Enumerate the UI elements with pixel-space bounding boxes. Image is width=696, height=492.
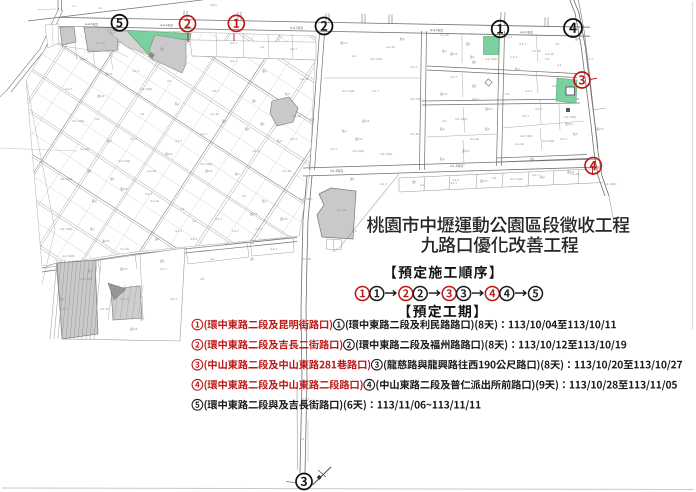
- svg-text:4-4-74(2): 4-4-74(2): [60, 177, 72, 181]
- svg-text:運2-6: 運2-6: [205, 168, 213, 173]
- svg-text:私2: 私2: [442, 48, 447, 53]
- svg-text:4-1-7: 4-1-7: [255, 227, 262, 231]
- svg-text:4-1-19: 4-1-19: [210, 112, 219, 116]
- svg-text:4-1-7: 4-1-7: [532, 173, 539, 177]
- svg-text:4-1-19: 4-1-19: [120, 297, 129, 301]
- svg-text:4-4-74(2): 4-4-74(2): [72, 119, 84, 123]
- svg-text:運1: 運1: [140, 316, 145, 321]
- svg-text:運1: 運1: [160, 258, 165, 263]
- svg-text:4-1-7: 4-1-7: [290, 47, 297, 51]
- svg-text:4-4-74(2): 4-4-74(2): [140, 87, 152, 91]
- svg-text:4-4-74(2): 4-4-74(2): [485, 57, 497, 61]
- svg-text:4-4-74(2): 4-4-74(2): [300, 197, 312, 201]
- svg-text:運2-6: 運2-6: [165, 151, 173, 156]
- svg-text:4-4: 4-4: [420, 183, 425, 187]
- svg-text:私2: 私2: [485, 126, 490, 131]
- svg-text:4-1-19: 4-1-19: [440, 33, 449, 37]
- svg-text:運2-6: 運2-6: [130, 326, 138, 331]
- svg-text:私2: 私2: [342, 128, 347, 133]
- svg-text:4-4-7: 4-4-7: [380, 182, 387, 186]
- svg-text:4-4-74(2): 4-4-74(2): [342, 89, 354, 93]
- svg-text:私2: 私2: [90, 226, 95, 231]
- svg-text:4-4-7: 4-4-7: [170, 297, 177, 301]
- svg-text:4-1-19: 4-1-19: [337, 208, 346, 212]
- svg-text:4-1-19: 4-1-19: [80, 147, 89, 151]
- svg-text:私2: 私2: [175, 101, 180, 106]
- svg-text:4-1-19: 4-1-19: [300, 77, 309, 81]
- svg-text:4-1-7: 4-1-7: [372, 89, 379, 93]
- svg-text:4-1-7: 4-1-7: [330, 147, 337, 151]
- svg-text:4-4: 4-4: [95, 117, 100, 121]
- svg-text:運2-6: 運2-6: [565, 121, 573, 126]
- svg-text:運1: 運1: [472, 83, 477, 88]
- svg-text:4-4: 4-4: [505, 92, 510, 96]
- svg-text:4-1-7: 4-1-7: [522, 114, 529, 118]
- svg-text:4-4: 4-4: [545, 57, 550, 61]
- svg-text:4-4: 4-4: [192, 219, 197, 223]
- svg-text:4-1-19: 4-1-19: [570, 172, 579, 176]
- svg-text:4-1-19: 4-1-19: [470, 137, 479, 141]
- svg-text:4-4-74(2): 4-4-74(2): [62, 254, 74, 258]
- svg-text:4-4-74(2): 4-4-74(2): [85, 22, 98, 26]
- svg-text:4-1-19: 4-1-19: [515, 142, 524, 146]
- svg-text:4-4-74(2): 4-4-74(2): [510, 177, 522, 181]
- svg-text:4-4-7: 4-4-7: [212, 89, 219, 93]
- svg-text:4-4-7: 4-4-7: [472, 97, 479, 101]
- svg-text:4-1-7: 4-1-7: [535, 107, 542, 111]
- svg-text:4-1-19: 4-1-19: [545, 52, 554, 56]
- svg-text:4-1-7: 4-1-7: [130, 137, 137, 141]
- svg-text:4-1-7: 4-1-7: [80, 57, 87, 61]
- svg-text:4-1-19(2): 4-1-19(2): [450, 164, 463, 168]
- svg-text:4-4: 4-4: [442, 119, 447, 123]
- svg-text:4-4: 4-4: [210, 257, 215, 261]
- svg-text:4-4-7: 4-4-7: [510, 55, 517, 59]
- svg-text:運2-6: 運2-6: [102, 238, 110, 243]
- svg-text:4-4-74(2): 4-4-74(2): [410, 97, 422, 101]
- svg-text:運1: 運1: [350, 176, 355, 181]
- svg-text:運2-6: 運2-6: [480, 178, 488, 183]
- svg-text:4-4-7: 4-4-7: [519, 42, 526, 46]
- svg-text:4-4: 4-4: [260, 45, 265, 49]
- svg-text:私2: 私2: [88, 268, 93, 273]
- svg-text:4-4: 4-4: [200, 277, 205, 281]
- svg-text:4-1-19: 4-1-19: [386, 45, 395, 49]
- svg-text:私2: 私2: [107, 138, 112, 143]
- svg-text:運1: 運1: [222, 118, 227, 123]
- svg-text:44(2): 44(2): [210, 3, 217, 7]
- svg-text:4-4-74(2): 4-4-74(2): [60, 227, 72, 231]
- svg-text:4-1-7: 4-1-7: [232, 229, 239, 233]
- svg-text:運2-6: 運2-6: [440, 91, 448, 96]
- svg-text:4-4-74(2): 4-4-74(2): [160, 24, 173, 28]
- svg-text:私2: 私2: [92, 198, 97, 203]
- svg-text:4-1-7: 4-1-7: [410, 65, 417, 69]
- svg-text:私2: 私2: [60, 296, 65, 301]
- svg-text:運2-6: 運2-6: [250, 211, 258, 216]
- svg-text:4-1-7: 4-1-7: [60, 307, 67, 311]
- svg-text:4-1-19: 4-1-19: [147, 169, 156, 173]
- svg-text:運2-6: 運2-6: [105, 71, 113, 76]
- svg-text:運1: 運1: [472, 59, 477, 64]
- svg-text:4-4: 4-4: [492, 176, 497, 180]
- svg-text:4-1-19: 4-1-19: [292, 114, 301, 118]
- svg-text:運1: 運1: [160, 46, 165, 51]
- svg-text:4-1-7: 4-1-7: [175, 229, 182, 233]
- svg-text:運1: 運1: [466, 41, 471, 46]
- svg-text:4-4-7: 4-4-7: [230, 41, 237, 45]
- svg-text:4-4-7: 4-4-7: [270, 247, 277, 251]
- svg-text:4-4-74(2): 4-4-74(2): [118, 159, 130, 163]
- svg-text:私2: 私2: [352, 228, 357, 233]
- svg-text:運2-6: 運2-6: [120, 186, 128, 191]
- svg-text:運2-6: 運2-6: [120, 266, 128, 271]
- svg-text:4-4-74(2): 4-4-74(2): [290, 26, 303, 30]
- svg-text:私2: 私2: [440, 156, 445, 161]
- svg-text:4-1-7: 4-1-7: [175, 139, 182, 143]
- svg-text:4-4-7: 4-4-7: [230, 59, 237, 63]
- svg-text:運1: 運1: [87, 168, 92, 173]
- svg-text:4-1-7: 4-1-7: [450, 181, 457, 185]
- svg-text:運1: 運1: [260, 121, 265, 126]
- svg-text:私2: 私2: [515, 66, 520, 71]
- svg-text:4-4-7: 4-4-7: [525, 89, 532, 93]
- svg-text:運1: 運1: [412, 179, 417, 184]
- svg-text:4-1-19: 4-1-19: [302, 257, 311, 261]
- svg-text:4-1-7: 4-1-7: [132, 69, 139, 73]
- svg-text:4-4-74(2): 4-4-74(2): [520, 30, 533, 34]
- svg-text:4-4-74(2): 4-4-74(2): [542, 139, 554, 143]
- svg-text:運2-6: 運2-6: [485, 106, 493, 111]
- svg-text:4-1-7: 4-1-7: [215, 217, 222, 221]
- svg-text:運1: 運1: [245, 126, 250, 131]
- svg-text:運2-6: 運2-6: [596, 126, 604, 131]
- svg-text:4-4: 4-4: [470, 32, 475, 36]
- svg-text:4-4-7: 4-4-7: [145, 192, 152, 196]
- svg-text:4-1-7: 4-1-7: [586, 57, 593, 61]
- svg-text:運1: 運1: [262, 68, 267, 73]
- svg-text:4-4-7: 4-4-7: [190, 237, 197, 241]
- svg-text:4-1-19: 4-1-19: [150, 199, 159, 203]
- svg-text:4-4: 4-4: [167, 79, 172, 83]
- svg-text:4-4-7: 4-4-7: [200, 132, 207, 136]
- svg-text:4-4: 4-4: [242, 194, 247, 198]
- svg-text:4-1-19: 4-1-19: [282, 169, 291, 173]
- svg-text:4-4: 4-4: [557, 63, 562, 67]
- svg-text:私2: 私2: [285, 91, 290, 96]
- svg-text:4-4-74(2): 4-4-74(2): [200, 162, 212, 166]
- svg-text:私2: 私2: [262, 198, 267, 203]
- svg-text:4-4: 4-4: [225, 242, 230, 246]
- svg-text:運2-6: 運2-6: [340, 40, 348, 45]
- svg-text:運2-6: 運2-6: [355, 136, 363, 141]
- svg-text:4-1-19: 4-1-19: [410, 132, 419, 136]
- svg-text:4-1-19: 4-1-19: [96, 41, 105, 45]
- svg-text:4-4-7: 4-4-7: [200, 249, 207, 253]
- svg-text:4-4-74(2): 4-4-74(2): [455, 117, 467, 121]
- svg-text:運1: 運1: [110, 176, 115, 181]
- svg-text:4-4: 4-4: [310, 117, 315, 121]
- svg-text:4-4-74(2): 4-4-74(2): [370, 57, 382, 61]
- svg-text:4-4-7: 4-4-7: [252, 149, 259, 153]
- svg-text:4-4: 4-4: [300, 437, 305, 441]
- svg-text:運1: 運1: [530, 156, 535, 161]
- svg-text:4-1-19: 4-1-19: [120, 247, 129, 251]
- svg-text:運1: 運1: [252, 98, 257, 103]
- svg-text:4-4-74(2): 4-4-74(2): [352, 149, 364, 153]
- svg-text:4-4-74(2): 4-4-74(2): [380, 152, 392, 156]
- svg-text:4-1: 4-1: [72, 4, 77, 8]
- svg-text:4-4-74(2): 4-4-74(2): [604, 182, 616, 186]
- svg-text:運2-6: 運2-6: [97, 93, 105, 98]
- svg-text:4-4: 4-4: [180, 207, 185, 211]
- svg-text:4-1-7: 4-1-7: [160, 267, 167, 271]
- svg-text:運2-6: 運2-6: [280, 216, 288, 221]
- svg-text:4-4-74(2): 4-4-74(2): [430, 29, 443, 33]
- svg-text:運1: 運1: [250, 256, 255, 261]
- svg-text:運2-6: 運2-6: [362, 118, 370, 123]
- svg-text:4-4-7: 4-4-7: [65, 87, 72, 91]
- svg-text:4-4-74(2): 4-4-74(2): [564, 115, 576, 119]
- svg-text:私2: 私2: [277, 138, 282, 143]
- svg-text:4-4-74(2): 4-4-74(2): [520, 134, 532, 138]
- svg-text:4-4: 4-4: [250, 241, 255, 245]
- svg-text:運1: 運1: [470, 54, 475, 59]
- svg-text:私2: 私2: [400, 36, 405, 41]
- svg-text:運1: 運1: [155, 236, 160, 241]
- svg-text:4-4: 4-4: [352, 54, 357, 58]
- svg-text:4-1-19: 4-1-19: [100, 307, 109, 311]
- svg-text:私2: 私2: [235, 171, 240, 176]
- svg-text:4-4: 4-4: [140, 112, 145, 116]
- svg-text:私2: 私2: [573, 131, 578, 136]
- svg-text:4-4-7: 4-4-7: [290, 137, 297, 141]
- svg-text:私2: 私2: [440, 126, 445, 131]
- svg-text:私2: 私2: [540, 174, 545, 179]
- svg-text:4-4-74(2): 4-4-74(2): [80, 277, 92, 281]
- svg-text:4-1-19: 4-1-19: [532, 49, 541, 53]
- svg-text:4-4-7: 4-4-7: [560, 137, 567, 141]
- svg-text:4-4-7: 4-4-7: [552, 84, 559, 88]
- svg-text:運2-6: 運2-6: [450, 51, 458, 56]
- svg-text:私2: 私2: [110, 30, 115, 35]
- svg-text:4-1-19(2): 4-1-19(2): [330, 169, 343, 173]
- svg-text:4-4: 4-4: [555, 42, 560, 46]
- svg-text:運2-6: 運2-6: [462, 148, 470, 153]
- svg-text:4-1-7: 4-1-7: [450, 75, 457, 79]
- svg-text:4-4: 4-4: [98, 6, 103, 10]
